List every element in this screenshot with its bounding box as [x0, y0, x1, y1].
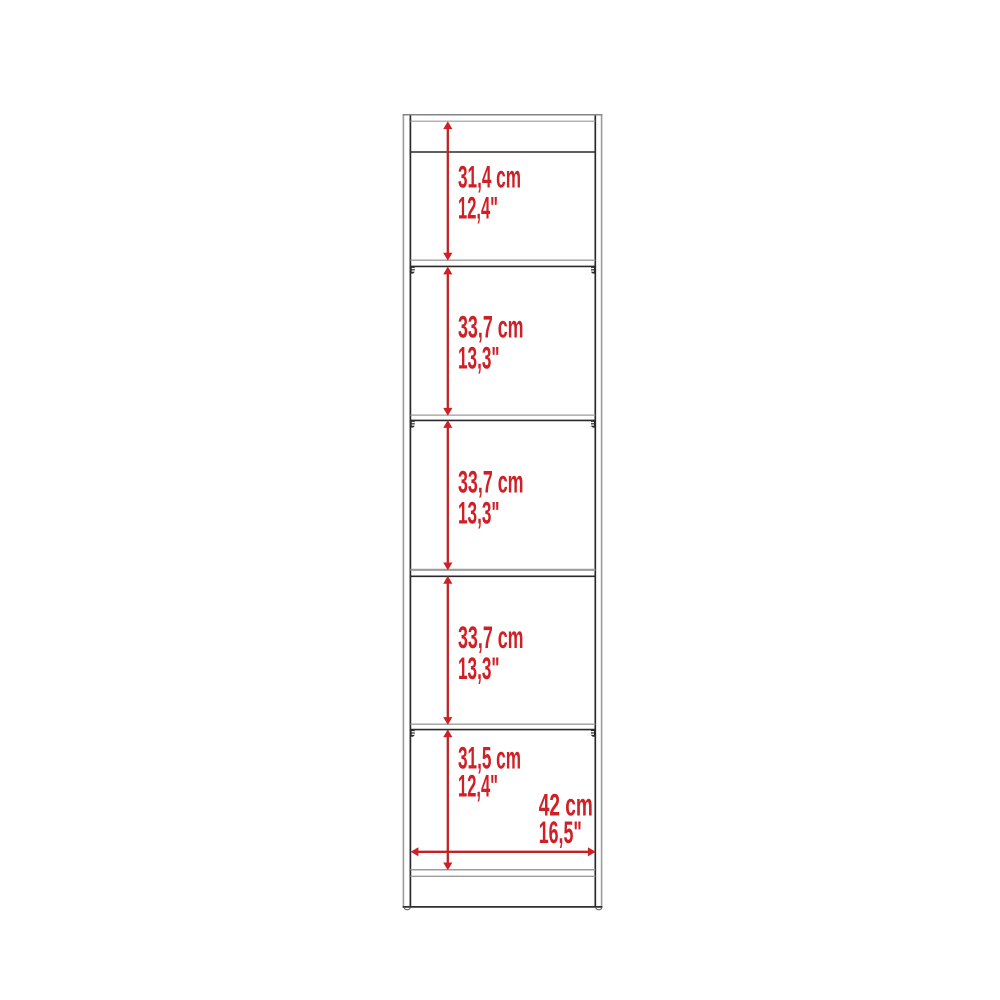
svg-text:13,3": 13,3": [458, 495, 500, 531]
svg-text:12,4": 12,4": [458, 190, 498, 226]
svg-text:13,3": 13,3": [458, 340, 500, 376]
svg-text:13,3": 13,3": [458, 650, 500, 686]
svg-text:16,5": 16,5": [539, 814, 582, 850]
svg-text:12,4": 12,4": [458, 768, 498, 804]
